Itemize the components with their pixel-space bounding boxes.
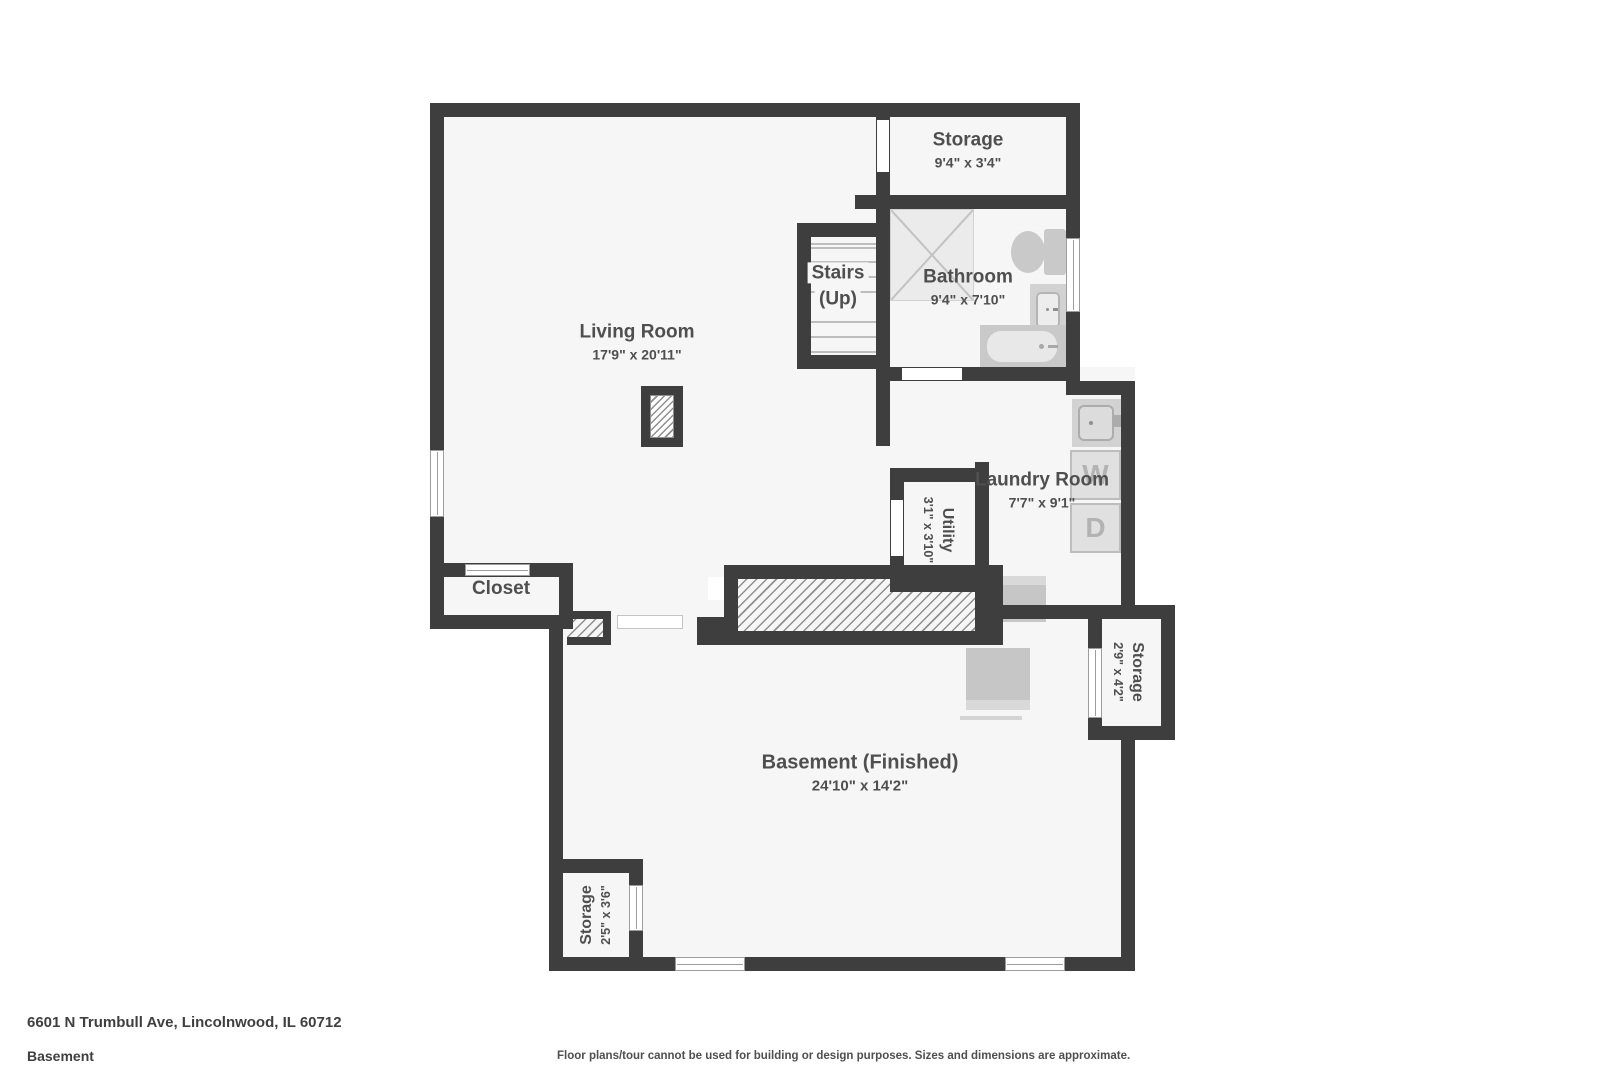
room-label-storage-right: Storage 2'9" x 4'2"	[1108, 642, 1148, 702]
room-label-living-room: Living Room 17'9" x 20'11"	[579, 320, 694, 365]
room-label-closet: Closet	[472, 576, 530, 602]
wall	[1121, 740, 1135, 971]
wall	[797, 223, 890, 237]
room-label-bathroom: Bathroom 9'4" x 7'10"	[923, 265, 1013, 310]
window	[1066, 238, 1080, 312]
toilet-tank	[1044, 229, 1066, 275]
address-text: 6601 N Trumbull Ave, Lincolnwood, IL 607…	[27, 1014, 342, 1031]
window	[465, 564, 530, 576]
laundry-sink-basin	[1078, 405, 1114, 441]
room-label-stairs: Stairs (Up)	[808, 260, 869, 311]
bathtub	[987, 331, 1057, 362]
wall	[975, 565, 1003, 645]
wall	[1121, 381, 1135, 619]
wall	[876, 381, 890, 446]
wall	[724, 565, 989, 579]
door-opening	[877, 120, 889, 172]
sink-dot	[1053, 308, 1058, 311]
wall	[697, 631, 1003, 645]
equipment-line	[960, 716, 1022, 720]
wall	[430, 103, 444, 629]
wall	[1088, 619, 1102, 648]
room-label-storage-bottom: Storage 2'5" x 3'6"	[576, 885, 616, 945]
door-opening	[617, 615, 683, 629]
door-opening	[902, 368, 962, 380]
wall	[430, 615, 573, 629]
window	[1088, 648, 1102, 718]
laundry-sink-dot	[1089, 421, 1093, 425]
wall	[1088, 718, 1102, 740]
window	[430, 450, 444, 517]
furnace-equipment-strip	[966, 700, 1030, 710]
room-label-utility: Utility 3'1" x 3'10"	[918, 497, 958, 563]
door-opening	[891, 500, 903, 556]
toilet-bowl	[1011, 231, 1045, 273]
chimney-flue	[650, 395, 674, 438]
wall	[989, 605, 1175, 619]
room-label-storage-top: Storage 9'4" x 3'4"	[933, 128, 1004, 173]
furnace-equipment	[966, 648, 1030, 708]
wall	[549, 629, 563, 971]
wall	[1161, 605, 1175, 740]
window	[1005, 957, 1065, 971]
bathtub-drain	[1039, 344, 1044, 349]
wall	[430, 103, 1080, 117]
wall	[855, 195, 1080, 209]
wall	[603, 611, 611, 645]
bathtub-faucet	[1048, 345, 1058, 348]
window	[629, 885, 643, 931]
sink-dot	[1046, 308, 1049, 311]
floor-plan: W D Storage 9'4" x 3'4" Bathroom 9'4" x …	[0, 0, 1620, 1080]
floor-name-text: Basement	[27, 1048, 94, 1064]
laundry-sink-tab	[1114, 415, 1121, 427]
room-label-laundry: Laundry Room 7'7" x 9'1"	[975, 468, 1109, 513]
window	[675, 957, 745, 971]
disclaimer-text: Floor plans/tour cannot be used for buil…	[557, 1050, 1130, 1062]
room-label-basement: Basement (Finished) 24'10" x 14'2"	[762, 749, 959, 796]
